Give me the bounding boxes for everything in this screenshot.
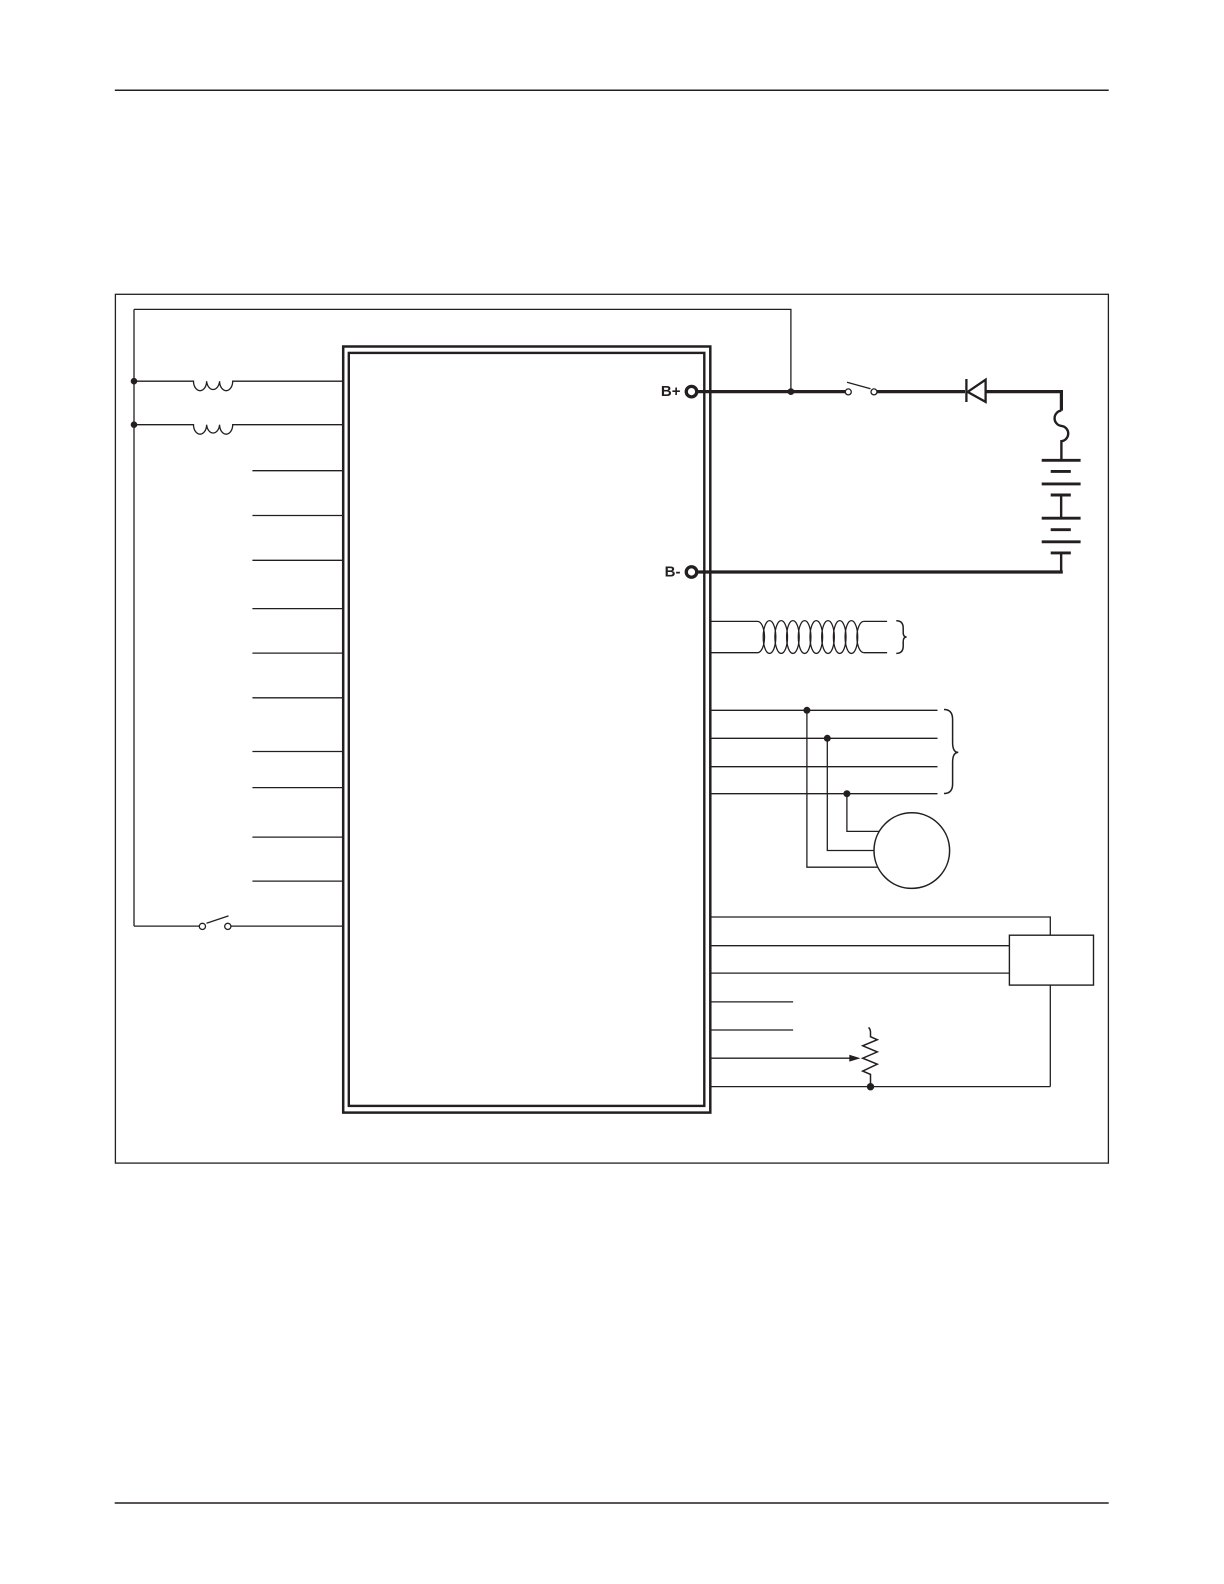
svg-text:B-: B- <box>665 563 681 580</box>
svg-text:B+: B+ <box>661 383 681 400</box>
